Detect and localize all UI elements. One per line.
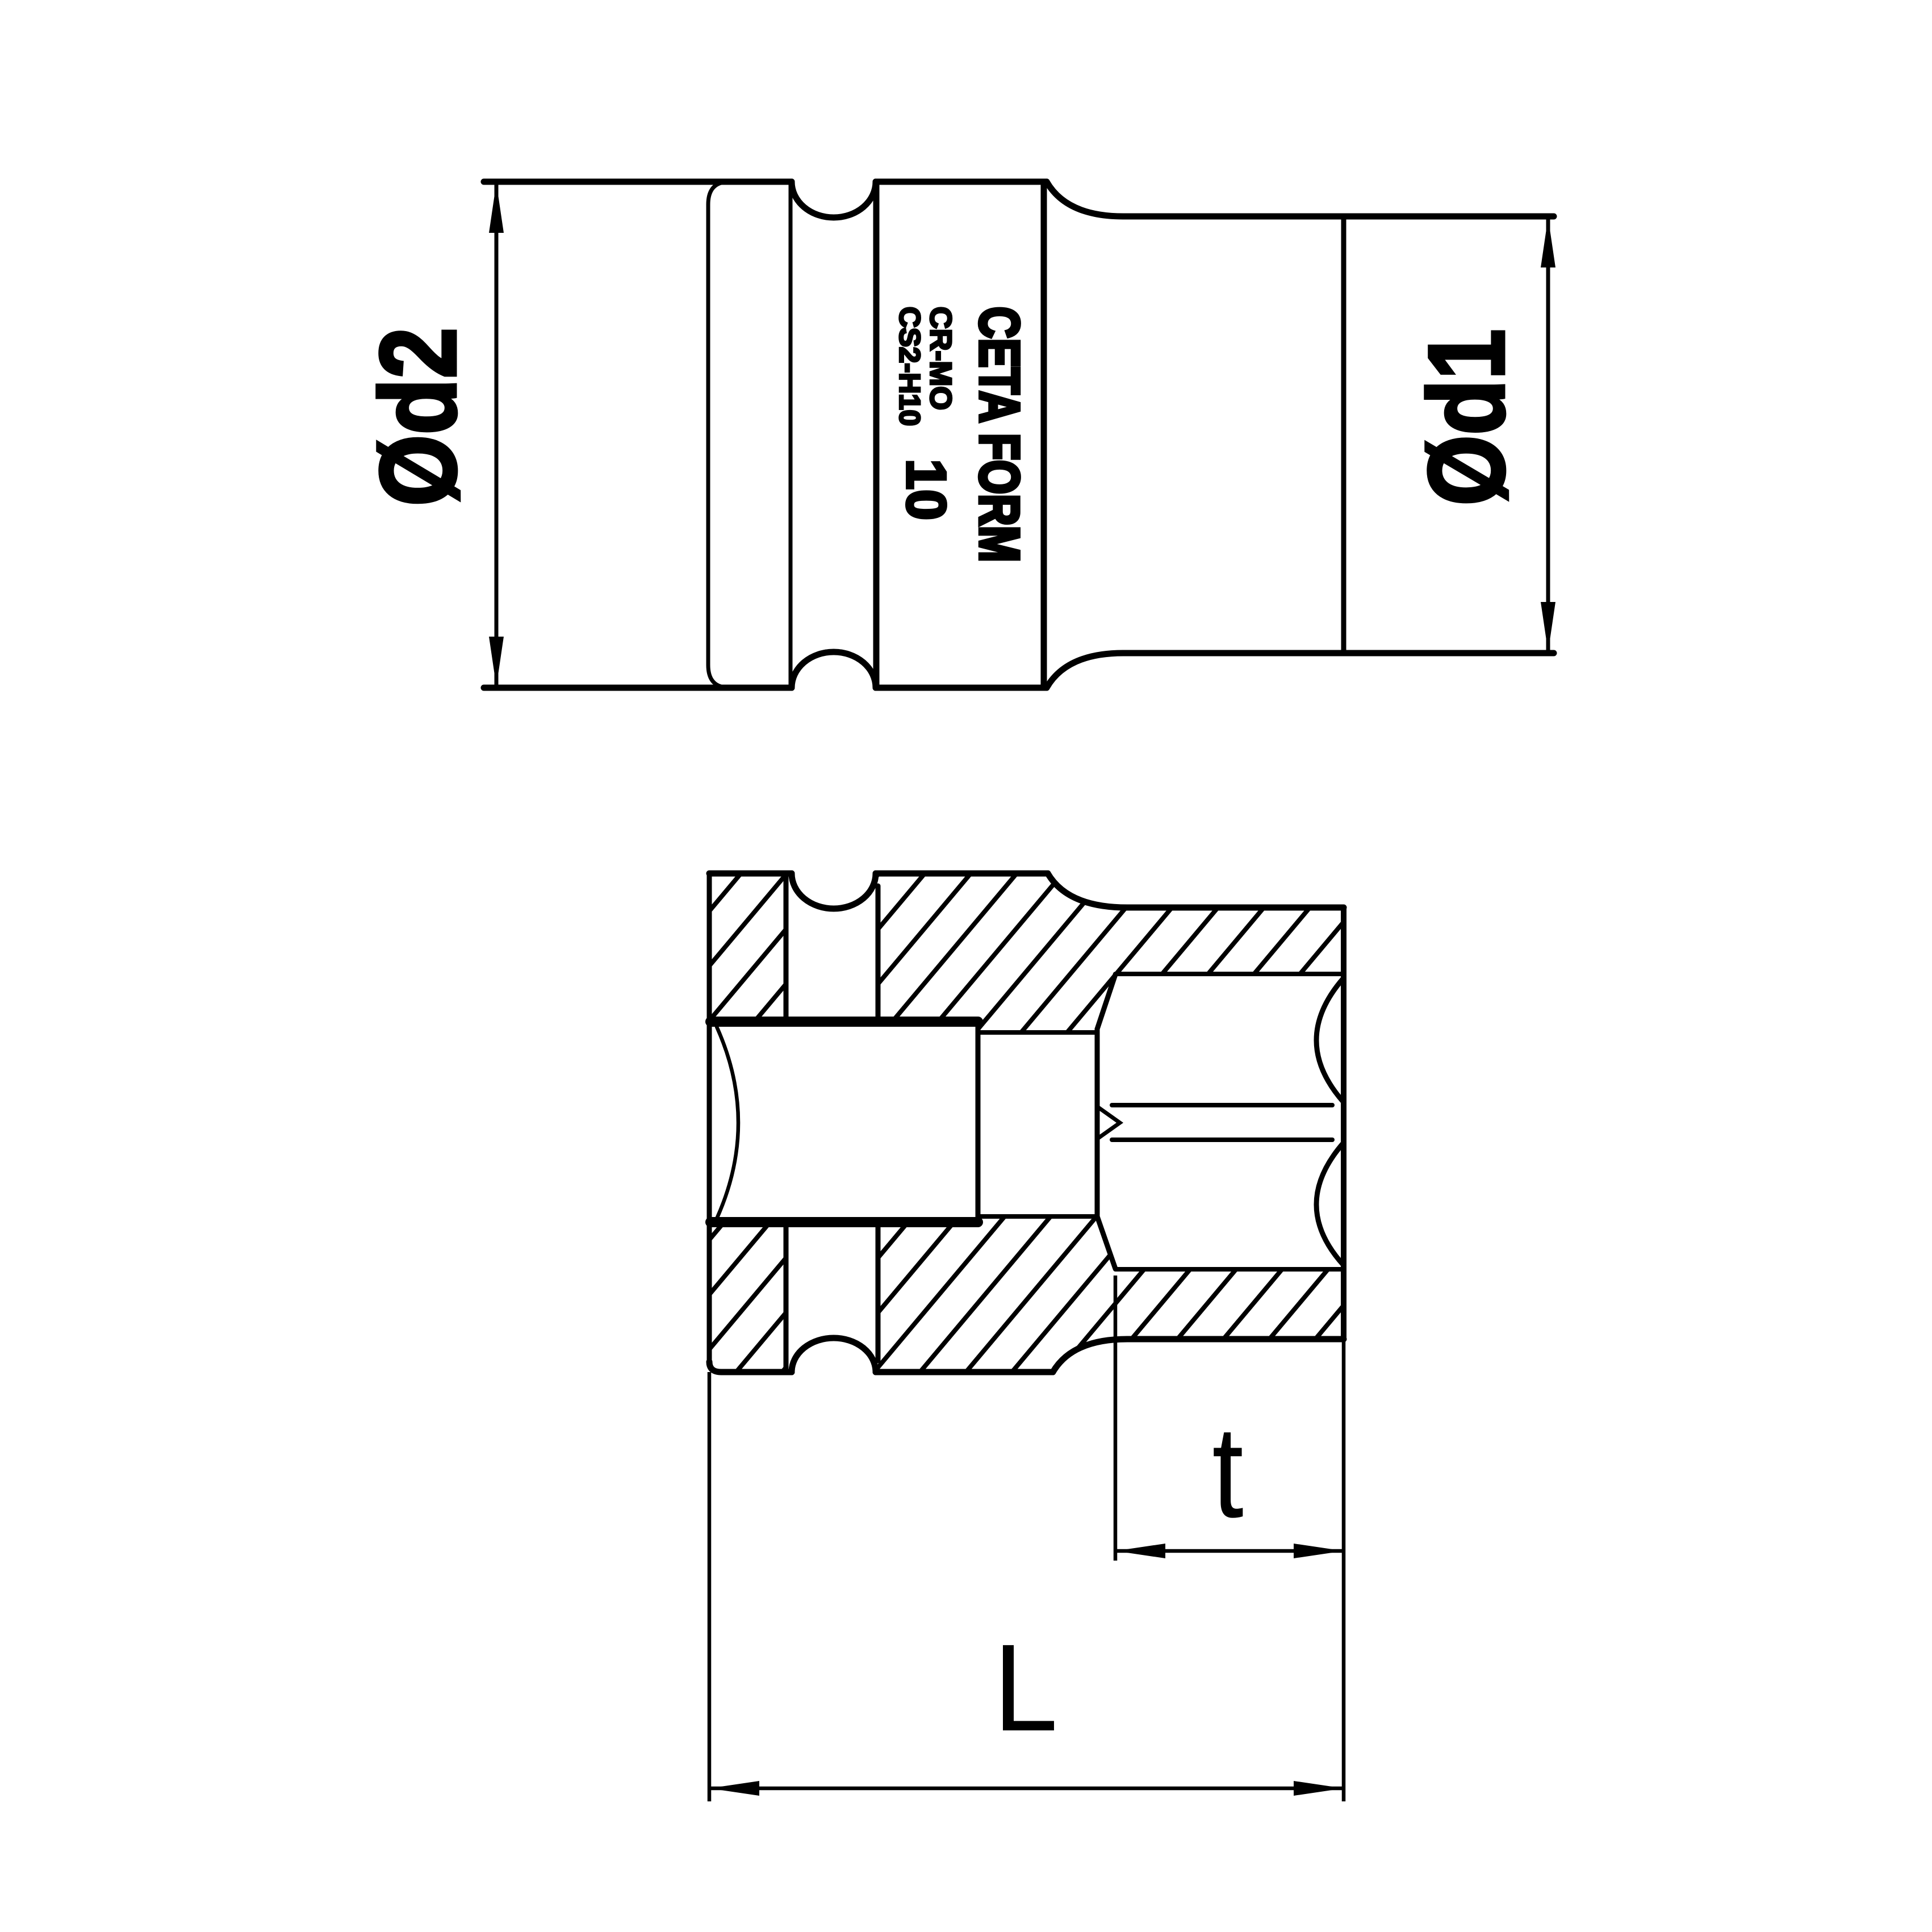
svg-text:Ød2: Ød2 (358, 328, 478, 507)
svg-text:Ød1: Ød1 (1406, 329, 1527, 506)
svg-text:L: L (993, 1619, 1057, 1757)
svg-text:CETA FORM: CETA FORM (968, 307, 1031, 562)
svg-text:10: 10 (896, 459, 957, 520)
svg-text:t: t (1212, 1399, 1244, 1545)
svg-text:CR-MO: CR-MO (924, 307, 957, 410)
svg-text:CS2-H10: CS2-H10 (894, 307, 926, 426)
